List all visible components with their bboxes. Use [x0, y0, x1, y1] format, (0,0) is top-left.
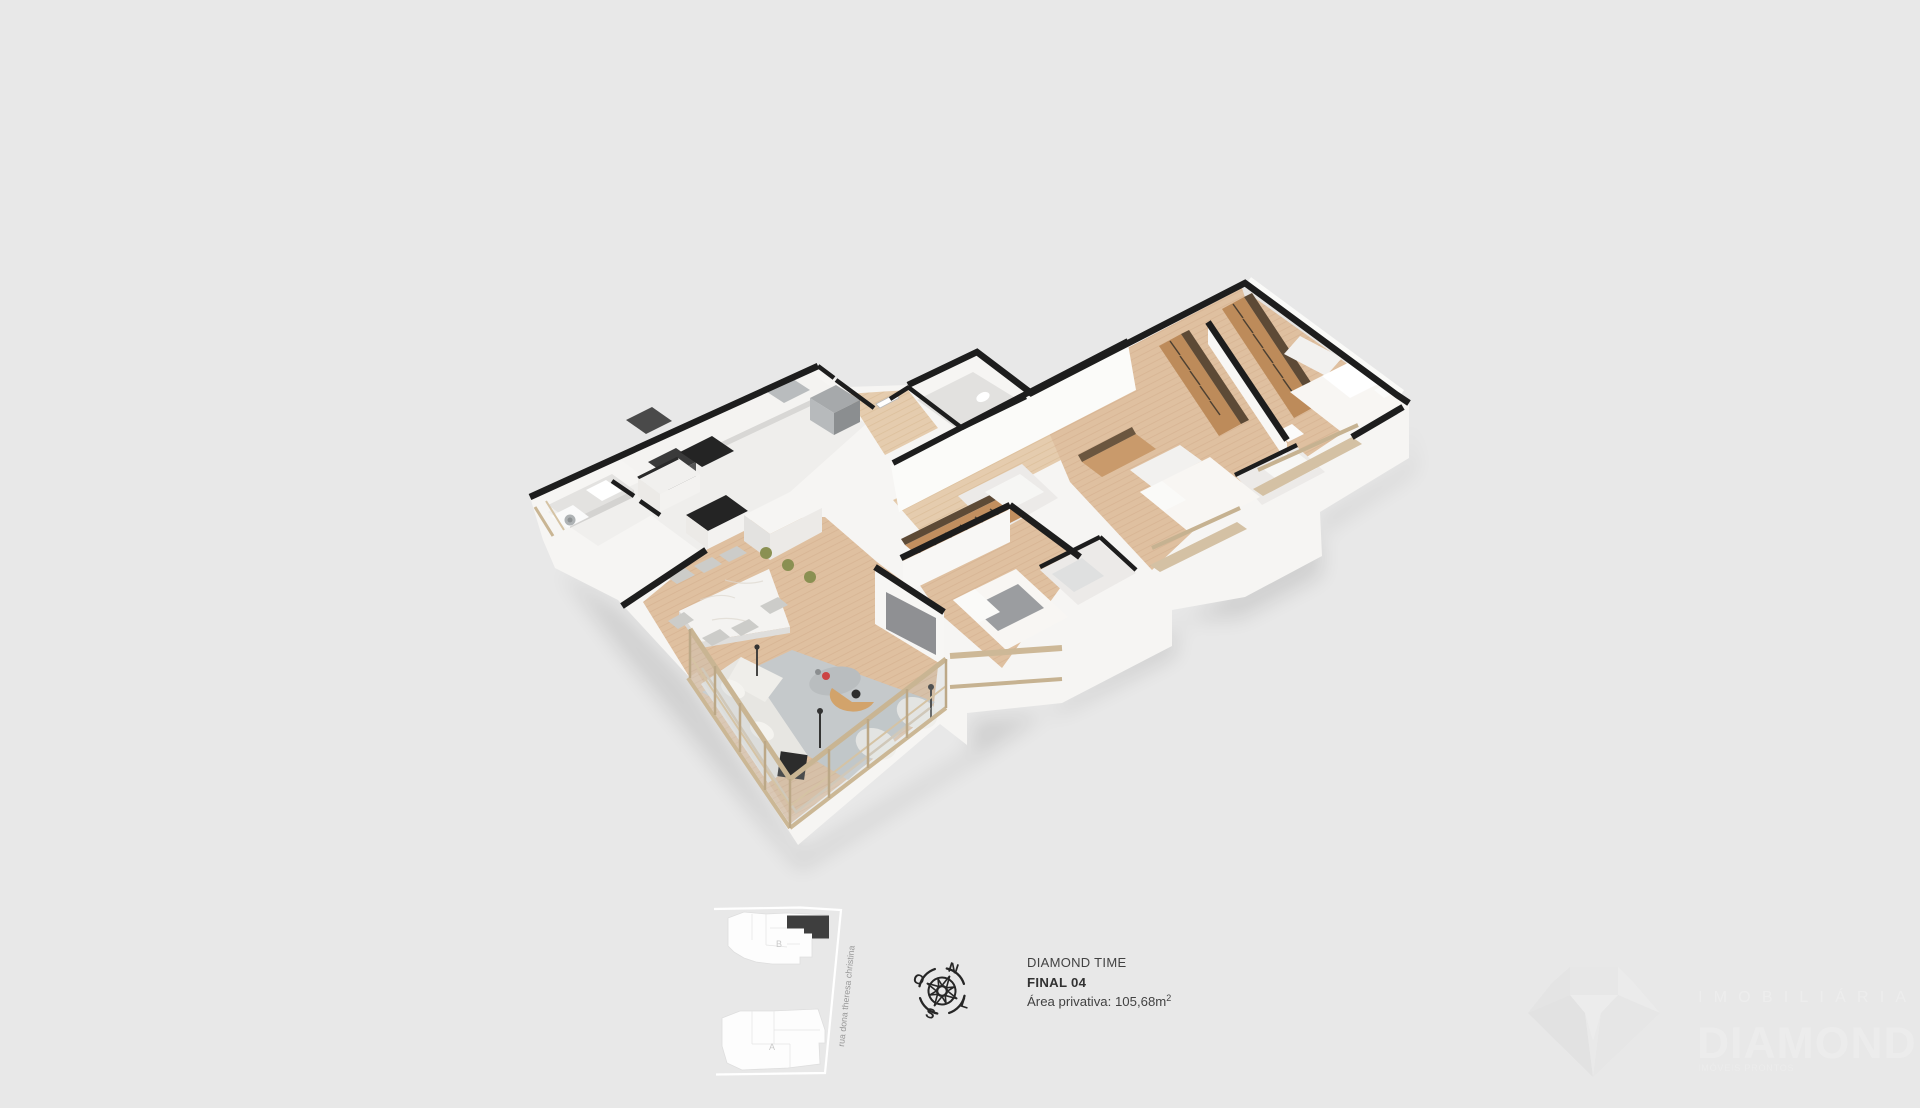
- svg-text:DIAMOND: DIAMOND: [1697, 1019, 1917, 1068]
- svg-text:IMOBILIÁRIA: IMOBILIÁRIA: [1698, 987, 1917, 1006]
- svg-text:Área privativa: 105,68m2: Área privativa: 105,68m2: [1027, 993, 1171, 1009]
- svg-text:IMÓVEIS PRONTOS: IMÓVEIS PRONTOS: [1698, 1063, 1794, 1073]
- svg-text:FINAL 04: FINAL 04: [1027, 975, 1087, 990]
- svg-text:A: A: [769, 1042, 775, 1052]
- svg-text:DIAMOND TIME: DIAMOND TIME: [1027, 955, 1126, 970]
- svg-text:B: B: [776, 939, 782, 949]
